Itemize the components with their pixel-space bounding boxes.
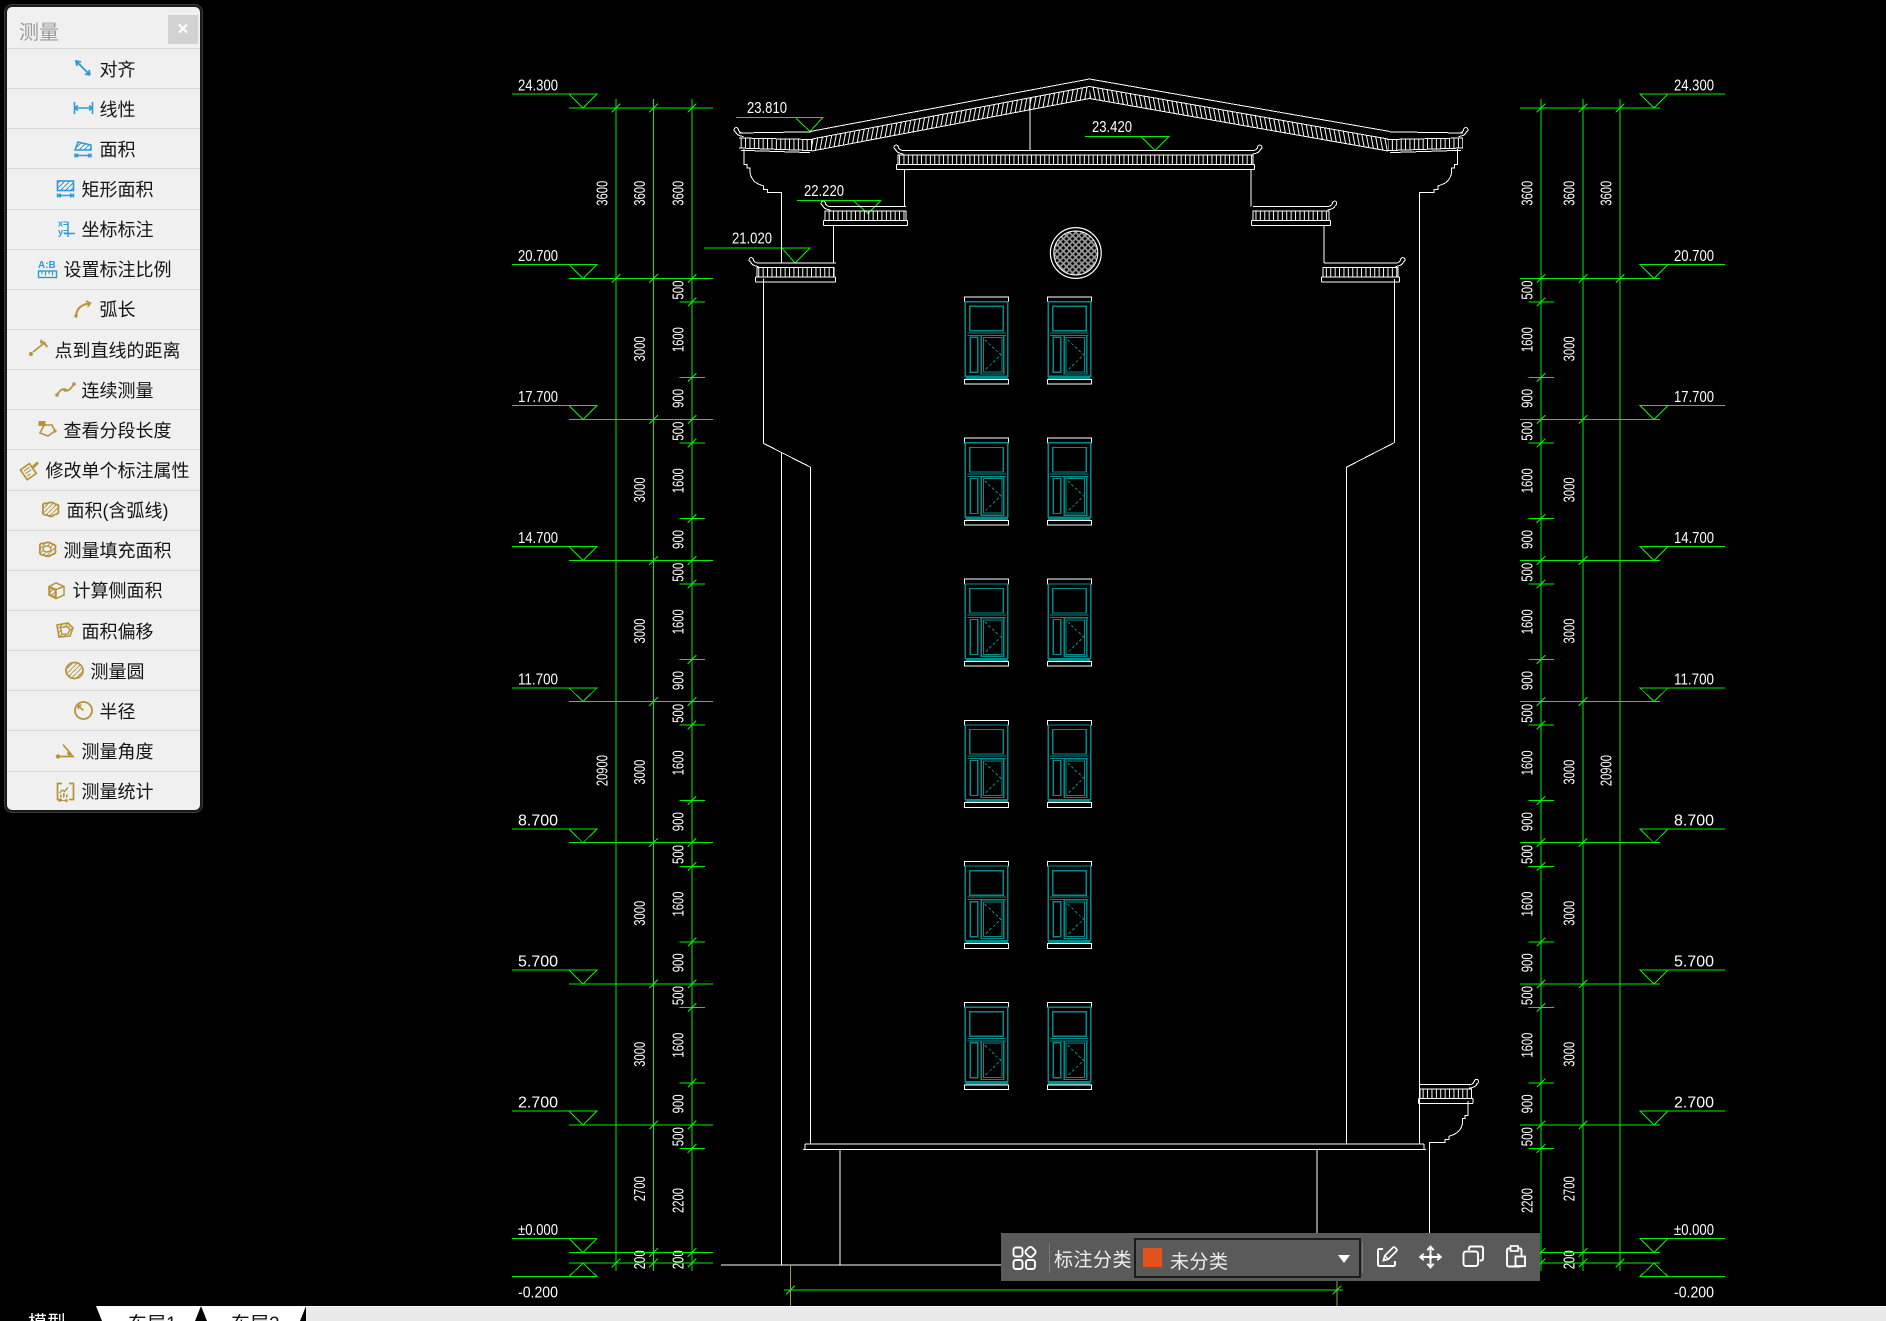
svg-text:24.300: 24.300	[518, 78, 558, 95]
svg-text:1600: 1600	[1520, 609, 1537, 634]
svg-text:20900: 20900	[595, 755, 612, 786]
svg-text:11.700: 11.700	[518, 671, 558, 688]
svg-text:8.700: 8.700	[1674, 812, 1714, 829]
svg-text:900: 900	[671, 389, 688, 408]
svg-text:1600: 1600	[1520, 750, 1537, 775]
svg-text:17.700: 17.700	[518, 389, 558, 406]
svg-text:23.810: 23.810	[747, 100, 787, 117]
svg-text:20.700: 20.700	[518, 248, 558, 265]
svg-text:500: 500	[671, 1127, 688, 1146]
svg-text:2700: 2700	[1562, 1176, 1579, 1201]
svg-text:3600: 3600	[1520, 181, 1537, 206]
svg-text:900: 900	[671, 1094, 688, 1113]
svg-text:500: 500	[671, 845, 688, 864]
svg-text:1600: 1600	[671, 468, 688, 493]
svg-text:1600: 1600	[671, 891, 688, 916]
svg-text:3000: 3000	[632, 477, 649, 502]
svg-text:1600: 1600	[1520, 468, 1537, 493]
svg-text:500: 500	[671, 422, 688, 441]
svg-text:500: 500	[1520, 986, 1537, 1005]
svg-text:500: 500	[1520, 563, 1537, 582]
svg-text:5.700: 5.700	[1674, 954, 1714, 971]
svg-text:23.420: 23.420	[1092, 119, 1132, 136]
svg-text:3000: 3000	[632, 760, 649, 785]
svg-text:2.700: 2.700	[1674, 1095, 1714, 1112]
svg-text:900: 900	[1520, 953, 1537, 972]
svg-text:14.700: 14.700	[1674, 530, 1714, 547]
svg-text:900: 900	[671, 812, 688, 831]
svg-text:14.700: 14.700	[518, 530, 558, 547]
svg-text:3000: 3000	[1562, 336, 1579, 361]
svg-text:3000: 3000	[632, 336, 649, 361]
svg-text:1600: 1600	[1520, 891, 1537, 916]
svg-text:500: 500	[671, 281, 688, 300]
svg-text:3600: 3600	[632, 181, 649, 206]
svg-text:500: 500	[1520, 422, 1537, 441]
svg-text:900: 900	[1520, 530, 1537, 549]
svg-text:22.220: 22.220	[804, 183, 844, 200]
svg-text:500: 500	[671, 986, 688, 1005]
svg-text:1600: 1600	[671, 1033, 688, 1058]
svg-text:11.700: 11.700	[1674, 671, 1714, 688]
svg-text:17.700: 17.700	[1674, 389, 1714, 406]
svg-text:500: 500	[1520, 704, 1537, 723]
svg-text:5.700: 5.700	[518, 954, 558, 971]
svg-text:2700: 2700	[632, 1176, 649, 1201]
svg-text:900: 900	[1520, 389, 1537, 408]
svg-text:3600: 3600	[595, 181, 612, 206]
svg-text:3000: 3000	[1562, 901, 1579, 926]
svg-text:500: 500	[671, 563, 688, 582]
svg-text:1600: 1600	[1520, 1033, 1537, 1058]
svg-text:500: 500	[1520, 1127, 1537, 1146]
svg-text:3600: 3600	[1599, 181, 1616, 206]
svg-text:2.700: 2.700	[518, 1095, 558, 1112]
svg-text:900: 900	[1520, 671, 1537, 690]
svg-text:1600: 1600	[671, 609, 688, 634]
svg-text:1600: 1600	[671, 327, 688, 352]
svg-text:900: 900	[671, 671, 688, 690]
svg-text:900: 900	[1520, 812, 1537, 831]
svg-text:20900: 20900	[1599, 755, 1616, 786]
svg-text:y=: y=	[58, 227, 68, 237]
svg-text:-0.200: -0.200	[518, 1285, 558, 1302]
svg-text:900: 900	[1520, 1094, 1537, 1113]
svg-text:3000: 3000	[632, 1042, 649, 1067]
svg-text:8.700: 8.700	[518, 812, 558, 829]
svg-text:±0.000: ±0.000	[1674, 1222, 1714, 1239]
svg-text:900: 900	[671, 953, 688, 972]
svg-text:500: 500	[1520, 281, 1537, 300]
svg-text:±0.000: ±0.000	[518, 1222, 558, 1239]
svg-text:3000: 3000	[1562, 477, 1579, 502]
svg-text:-0.200: -0.200	[1674, 1285, 1714, 1302]
svg-text:A:B: A:B	[38, 260, 56, 271]
svg-text:900: 900	[671, 530, 688, 549]
svg-text:500: 500	[1520, 845, 1537, 864]
svg-text:3000: 3000	[632, 618, 649, 643]
svg-text:21.020: 21.020	[732, 231, 772, 248]
svg-text:3000: 3000	[632, 901, 649, 926]
svg-text:3000: 3000	[1562, 1042, 1579, 1067]
svg-text:3600: 3600	[671, 181, 688, 206]
svg-text:20.700: 20.700	[1674, 248, 1714, 265]
svg-text:3000: 3000	[1562, 618, 1579, 643]
svg-text:2200: 2200	[671, 1188, 688, 1213]
svg-text:1600: 1600	[1520, 327, 1537, 352]
svg-text:500: 500	[671, 704, 688, 723]
svg-text:3600: 3600	[1562, 181, 1579, 206]
svg-text:24.300: 24.300	[1674, 78, 1714, 95]
svg-text:3000: 3000	[1562, 760, 1579, 785]
svg-text:1600: 1600	[671, 750, 688, 775]
svg-text:2200: 2200	[1520, 1188, 1537, 1213]
